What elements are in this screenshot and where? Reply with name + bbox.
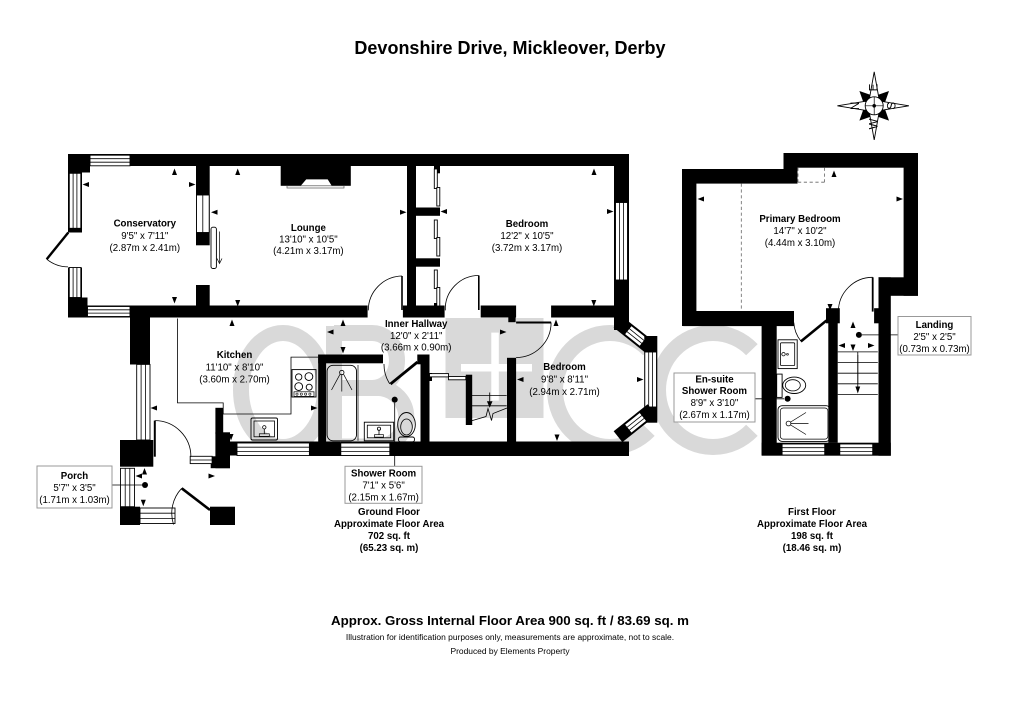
svg-text:Ground Floor: Ground Floor: [358, 507, 420, 518]
svg-text:11'10" x 8'10": 11'10" x 8'10": [206, 362, 264, 373]
svg-text:N: N: [850, 102, 862, 110]
svg-text:E: E: [868, 83, 880, 91]
svg-text:(2.67m x 1.17m): (2.67m x 1.17m): [679, 410, 750, 421]
svg-text:First Floor: First Floor: [788, 507, 836, 518]
svg-text:Approx. Gross Internal Floor A: Approx. Gross Internal Floor Area 900 sq…: [331, 613, 689, 628]
svg-text:Kitchen: Kitchen: [217, 350, 253, 361]
svg-text:(4.21m x 3.17m): (4.21m x 3.17m): [273, 246, 344, 257]
svg-text:7'1" x 5'6": 7'1" x 5'6": [362, 481, 405, 492]
svg-text:(3.60m x 2.70m): (3.60m x 2.70m): [199, 375, 270, 386]
svg-text:198 sq. ft: 198 sq. ft: [791, 531, 834, 542]
svg-text:En-suite: En-suite: [695, 375, 734, 386]
svg-text:Produced by Elements Property: Produced by Elements Property: [450, 646, 570, 656]
svg-text:702 sq. ft: 702 sq. ft: [368, 531, 411, 542]
svg-text:Shower Room: Shower Room: [351, 469, 417, 480]
svg-text:Porch: Porch: [61, 471, 89, 482]
svg-text:Conservatory: Conservatory: [114, 219, 177, 230]
svg-text:W: W: [868, 118, 880, 129]
svg-text:(4.44m x 3.10m): (4.44m x 3.10m): [765, 238, 836, 249]
svg-text:S: S: [887, 102, 899, 110]
svg-text:8'9" x 3'10": 8'9" x 3'10": [691, 398, 739, 409]
svg-text:Approximate Floor Area: Approximate Floor Area: [334, 519, 445, 530]
svg-text:Bedroom: Bedroom: [543, 362, 586, 373]
svg-text:Approximate Floor Area: Approximate Floor Area: [757, 519, 868, 530]
svg-text:(2.94m x 2.71m): (2.94m x 2.71m): [529, 387, 600, 398]
svg-text:(0.73m x 0.73m): (0.73m x 0.73m): [899, 344, 970, 355]
svg-text:9'5" x 7'11": 9'5" x 7'11": [121, 231, 169, 242]
svg-text:Inner Hallway: Inner Hallway: [385, 319, 448, 330]
svg-text:(3.72m x 3.17m): (3.72m x 3.17m): [492, 243, 563, 254]
svg-text:13'10" x 10'5": 13'10" x 10'5": [279, 234, 338, 245]
svg-text:12'0" x 2'11": 12'0" x 2'11": [390, 331, 443, 342]
svg-text:12'2" x 10'5": 12'2" x 10'5": [500, 231, 554, 242]
svg-text:Devonshire Drive, Mickleover,: Devonshire Drive, Mickleover, Derby: [354, 38, 665, 58]
svg-text:(3.66m x 0.90m): (3.66m x 0.90m): [381, 343, 452, 354]
svg-text:Landing: Landing: [916, 320, 954, 331]
svg-text:(65.23 sq. m): (65.23 sq. m): [360, 543, 419, 554]
svg-text:Lounge: Lounge: [291, 223, 327, 234]
svg-text:(1.71m x 1.03m): (1.71m x 1.03m): [39, 495, 110, 506]
svg-text:Illustration for identificatio: Illustration for identification purposes…: [346, 632, 674, 642]
svg-text:14'7" x 10'2": 14'7" x 10'2": [773, 226, 827, 237]
svg-text:(2.87m x 2.41m): (2.87m x 2.41m): [110, 243, 181, 254]
svg-text:(2.15m x 1.67m): (2.15m x 1.67m): [348, 492, 419, 503]
svg-text:Shower Room: Shower Room: [682, 386, 748, 397]
svg-text:Bedroom: Bedroom: [506, 219, 549, 230]
svg-text:(18.46 sq. m): (18.46 sq. m): [783, 543, 842, 554]
svg-text:9'8" x 8'11": 9'8" x 8'11": [541, 375, 589, 386]
svg-text:Primary Bedroom: Primary Bedroom: [759, 214, 841, 225]
svg-text:2'5" x 2'5": 2'5" x 2'5": [913, 332, 956, 343]
svg-text:5'7" x 3'5": 5'7" x 3'5": [53, 483, 96, 494]
